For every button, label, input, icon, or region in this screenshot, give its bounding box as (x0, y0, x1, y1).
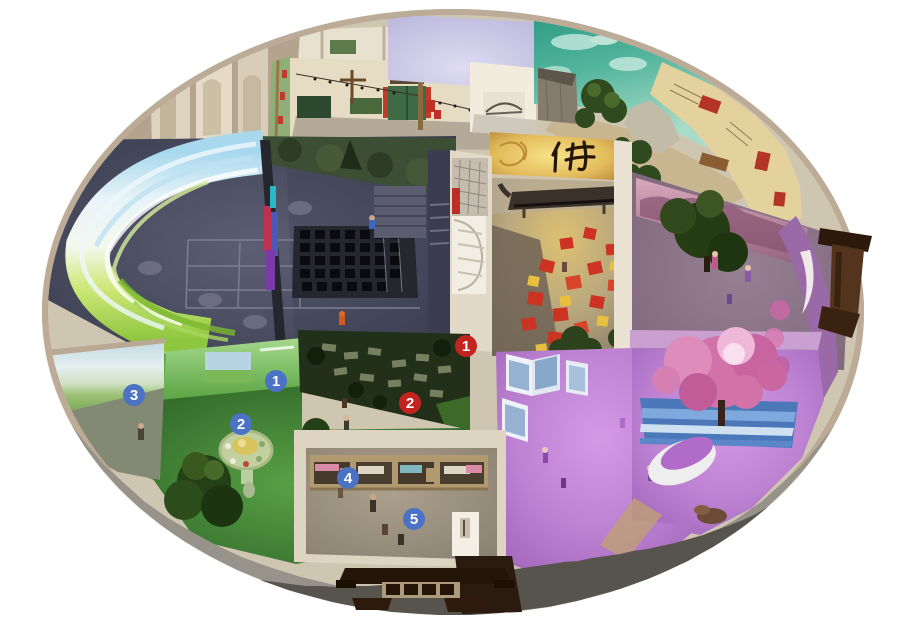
svg-text:1: 1 (272, 373, 280, 390)
svg-text:2: 2 (237, 416, 245, 433)
svg-text:1: 1 (462, 338, 470, 355)
svg-text:5: 5 (410, 511, 418, 528)
svg-text:2: 2 (406, 395, 414, 412)
svg-text:4: 4 (344, 470, 353, 487)
svg-text:3: 3 (130, 387, 138, 404)
